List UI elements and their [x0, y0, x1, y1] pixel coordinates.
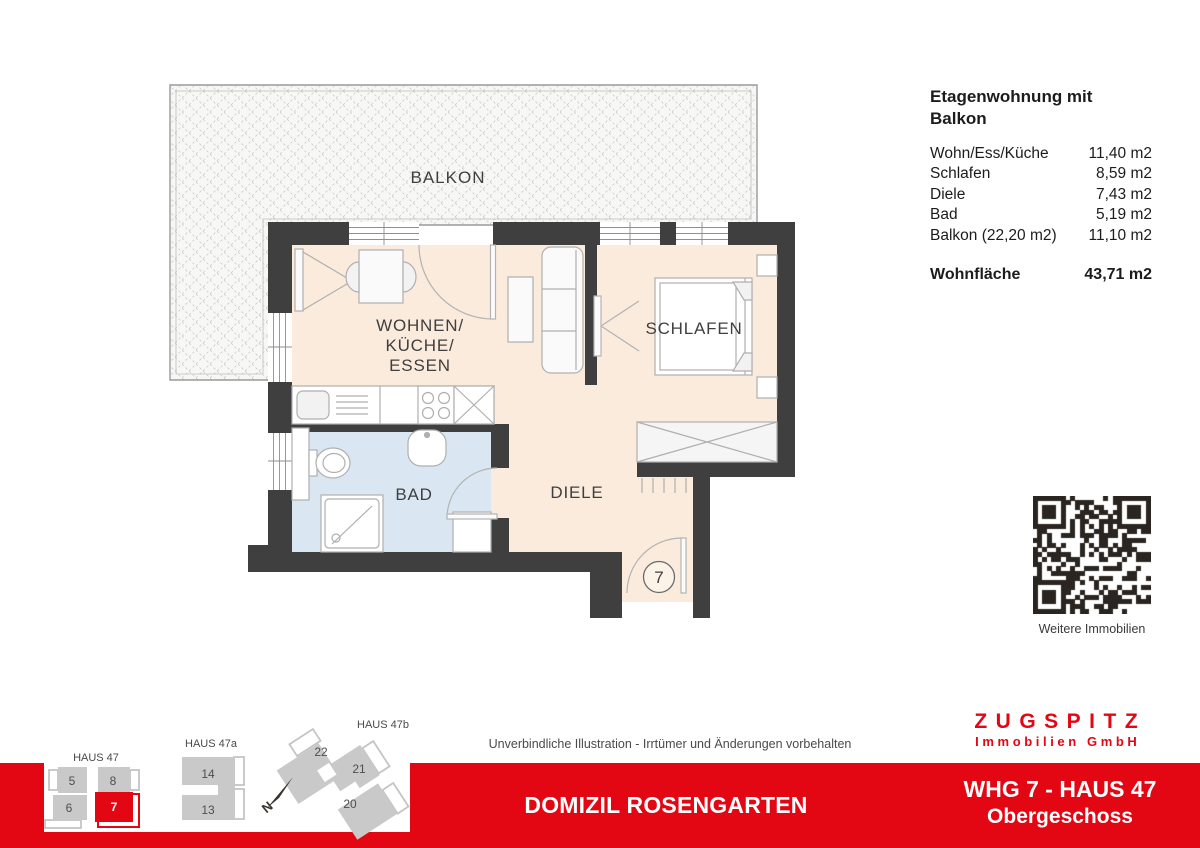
stove: [418, 386, 454, 424]
haus47a-unit-13: 13: [201, 803, 215, 817]
unit-title: WHG 7 - HAUS 47: [928, 775, 1192, 803]
sofa: [542, 247, 583, 373]
closet: [295, 249, 303, 311]
project-name-banner: DOMIZIL ROSENGARTEN: [410, 792, 922, 819]
sitemap-haus47b: HAUS 47b 22 21 20: [268, 705, 413, 848]
room-name: Balkon (22,20 m2): [930, 226, 1057, 246]
window-top-1: [349, 222, 419, 245]
nightstand-1: [757, 255, 777, 276]
sitemap-haus47a-label: HAUS 47a: [185, 738, 238, 750]
qr-caption: Weitere Immobilien: [1012, 622, 1172, 636]
room-name: Wohn/Ess/Küche: [930, 144, 1049, 164]
haus47-unit-5: 5: [69, 774, 76, 788]
room-area: 7,43 m2: [1096, 185, 1152, 205]
summary-title: Etagenwohnung mit Balkon: [930, 86, 1152, 130]
sitemap-haus47b-label: HAUS 47b: [357, 719, 409, 731]
bedroom-label: SCHLAFEN: [645, 319, 742, 338]
haus47-unit-7: 7: [111, 800, 118, 814]
area-summary-panel: Etagenwohnung mit Balkon Wohn/Ess/Küche …: [930, 86, 1152, 285]
room-area: 5,19 m2: [1096, 205, 1152, 225]
sitemap-haus47: HAUS 47 5 8 6 7: [45, 752, 139, 828]
summary-row: Bad 5,19 m2: [930, 205, 1152, 225]
unit-number-badge: 7: [644, 562, 675, 593]
haus47b-unit-22: 22: [314, 745, 328, 759]
sitemap-haus47a: HAUS 47a 14 13: [182, 738, 244, 820]
room-name: Schlafen: [930, 164, 990, 184]
haus47a-unit-14: 14: [201, 767, 215, 781]
room-area: 8,59 m2: [1096, 164, 1152, 184]
summary-total-row: Wohnfläche 43,71 m2: [930, 265, 1152, 285]
haus47b-unit-21: 21: [352, 762, 366, 776]
floor-title: Obergeschoss: [928, 803, 1192, 831]
total-label: Wohnfläche: [930, 265, 1020, 285]
living-label-1: WOHNEN/: [376, 316, 464, 335]
room-area: 11,40 m2: [1089, 144, 1152, 164]
bath-label: BAD: [395, 485, 432, 504]
window-left-2: [268, 433, 292, 490]
living-label-2: KÜCHE/: [385, 336, 454, 355]
window-left-1: [268, 313, 292, 382]
qr-code: [1033, 496, 1151, 614]
summary-row: Diele 7,43 m2: [930, 185, 1152, 205]
brand-logo: ZUGSPITZ Immobilien GmbH: [950, 710, 1162, 749]
total-area: 43,71 m2: [1084, 265, 1152, 285]
brand-name: ZUGSPITZ: [950, 710, 1171, 734]
unit-banner: WHG 7 - HAUS 47 Obergeschoss: [928, 775, 1192, 831]
shower: [321, 495, 383, 552]
window-top-2: [600, 222, 660, 245]
summary-row: Wohn/Ess/Küche 11,40 m2: [930, 144, 1152, 164]
room-name: Bad: [930, 205, 958, 225]
brand-subtitle: Immobilien GmbH: [950, 734, 1166, 749]
sitemap-haus47-label: HAUS 47: [73, 752, 119, 764]
balcony-label: BALKON: [411, 168, 486, 187]
summary-row: Schlafen 8,59 m2: [930, 164, 1152, 184]
haus47-unit-6: 6: [66, 801, 73, 815]
disclaimer-text: Unverbindliche Illustration - Irrtümer u…: [408, 737, 932, 751]
haus47b-unit-20: 20: [343, 797, 357, 811]
bath-shaft: [292, 428, 309, 500]
hall-label: DIELE: [550, 483, 603, 502]
room-area: 11,10 m2: [1089, 226, 1152, 246]
living-label-3: ESSEN: [389, 356, 451, 375]
nightstand-2: [757, 377, 777, 398]
summary-row: Balkon (22,20 m2) 11,10 m2: [930, 226, 1152, 246]
room-name: Diele: [930, 185, 965, 205]
window-top-3: [676, 222, 728, 245]
dining-table: [359, 250, 403, 303]
haus47-unit-8: 8: [110, 774, 117, 788]
kitchen-sink: [297, 391, 329, 419]
unit-number: 7: [654, 568, 663, 587]
coffee-table: [508, 277, 533, 342]
